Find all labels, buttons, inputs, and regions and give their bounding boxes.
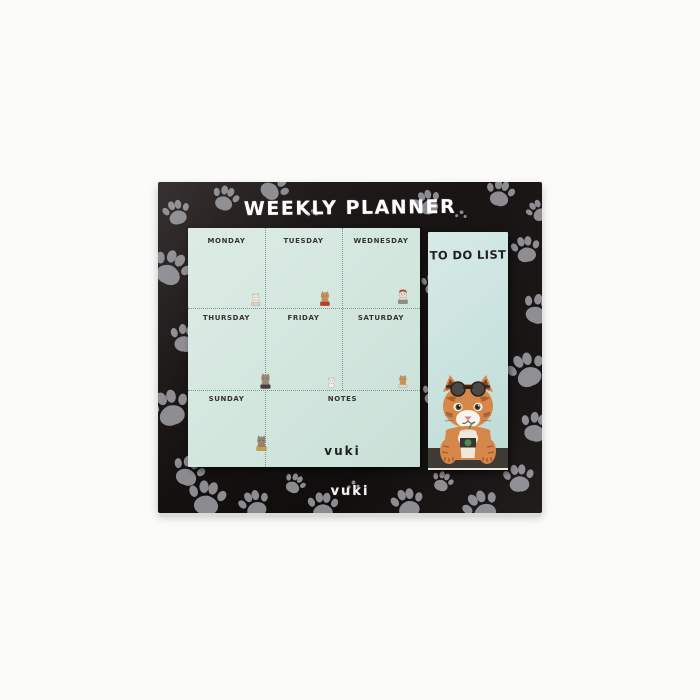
product-photo: WEEKLY PLANNER vuki MONDAY TUESDAY WEDNE… [0, 0, 700, 700]
board-page-edge [160, 513, 541, 517]
page-title: WEEKLY PLANNER [0, 193, 700, 222]
red-hat-cat-sticker [394, 288, 411, 309]
paw-print-icon [514, 287, 542, 334]
todo-page-edge [428, 468, 508, 470]
coffee-cat-illustration [430, 372, 506, 468]
laptop-cat-sticker [256, 372, 274, 394]
todo-title: TO DO LIST [428, 247, 508, 262]
cat-sticker-layer [188, 228, 420, 467]
todo-list-pad: TO DO LIST [428, 232, 508, 470]
paw-print-icon [514, 406, 542, 450]
tabby-cat-sticker [395, 374, 410, 393]
white-cat-sticker [324, 375, 338, 394]
reading-cat-sticker [316, 290, 333, 311]
white-cat-sticker [248, 292, 263, 311]
brand-logo-pad: vuki [265, 444, 420, 458]
weekly-planner-pad: MONDAY TUESDAY WEDNESDAY THURSDAY FRIDAY… [188, 228, 420, 467]
paw-print-icon [507, 231, 542, 269]
brand-logo-board: vuki [158, 484, 542, 499]
